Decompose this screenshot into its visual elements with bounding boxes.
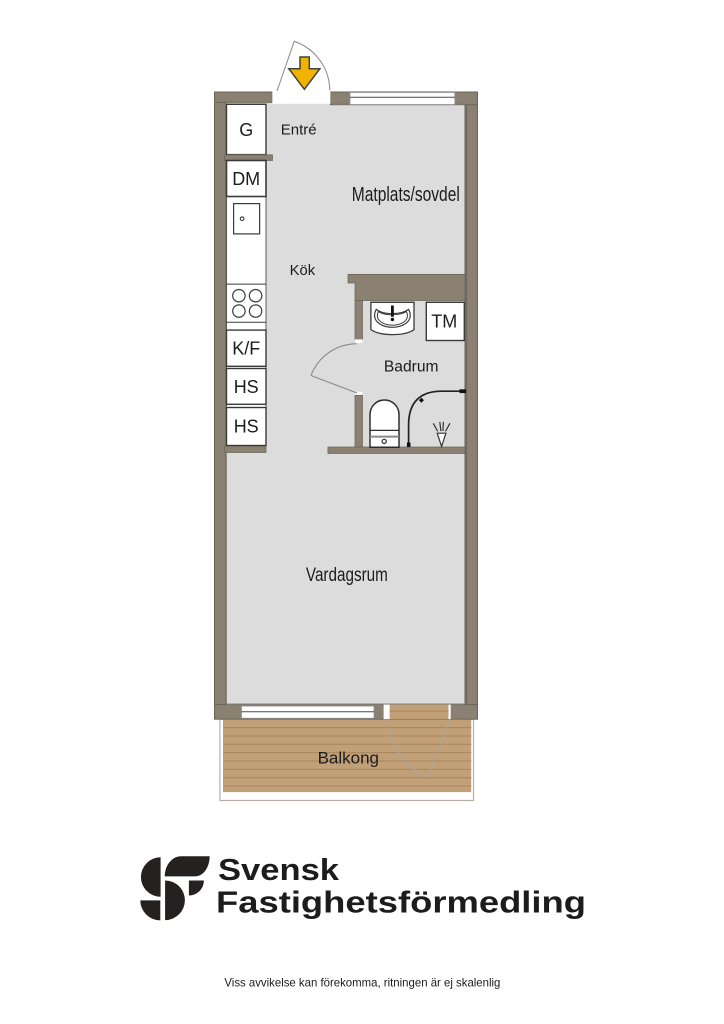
svg-text:DM: DM <box>232 169 260 189</box>
svg-text:Balkong: Balkong <box>318 749 379 768</box>
svg-text:Viss avvikelse kan förekomma,: Viss avvikelse kan förekomma, ritningen … <box>224 976 500 990</box>
svg-text:HS: HS <box>234 416 259 436</box>
svg-text:K/F: K/F <box>232 339 260 359</box>
svg-text:Vardagsrum: Vardagsrum <box>306 565 388 586</box>
svg-text:Svensk: Svensk <box>218 852 340 887</box>
svg-text:Fastighetsförmedling: Fastighetsförmedling <box>216 885 586 920</box>
svg-text:Entré: Entré <box>281 121 317 138</box>
svg-text:HS: HS <box>234 377 259 397</box>
svg-text:Badrum: Badrum <box>384 359 439 376</box>
svg-text:TM: TM <box>431 311 457 331</box>
svg-text:G: G <box>239 120 253 140</box>
svg-text:Matplats/sovdel: Matplats/sovdel <box>352 184 460 206</box>
svg-text:Kök: Kök <box>290 262 316 279</box>
